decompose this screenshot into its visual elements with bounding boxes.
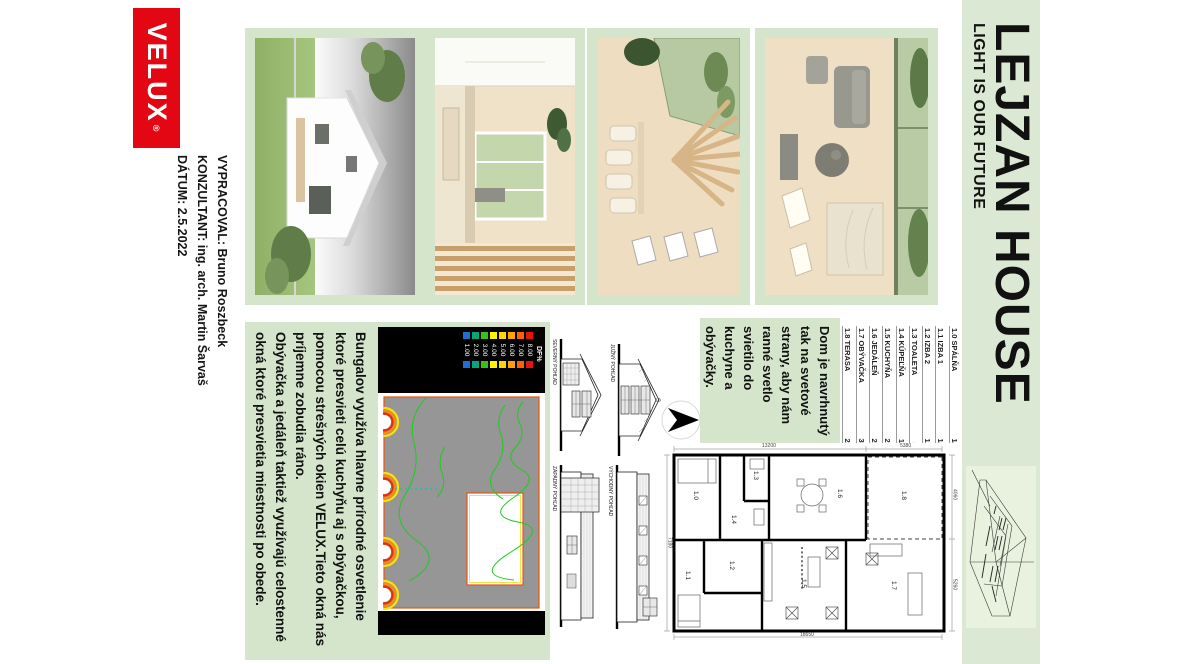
- dim-left-upper: 5380: [900, 443, 911, 449]
- room-label-jedalen: 1.6: [836, 489, 843, 498]
- room-legend: 1.0 SPÁLŇA14m²1.1 IZBA 114m²1.2 IZBA 212…: [842, 326, 962, 458]
- elevation-south-label: JUŽNÝ POHĽAD: [610, 344, 617, 382]
- render-dining-image: [597, 38, 740, 295]
- room-legend-row: 1.4 KÚPEĽŇA11m²: [896, 326, 909, 458]
- df-legend-row: 2.00: [472, 332, 480, 384]
- df-legend-row: 8.00: [526, 332, 534, 384]
- dim-right: 18650: [800, 632, 814, 638]
- north-label: S: [654, 398, 660, 402]
- elevation-east-label: VÝCHODNÝ POHĽAD: [608, 466, 614, 517]
- room-legend-row: 1.2 IZBA 212m²: [922, 326, 935, 458]
- daylight-panel: DF% 8.007.006.005.004.003.002.001.00 Bun…: [245, 322, 550, 660]
- presentation-board: LEJZAN HOUSE LIGHT IS OUR FUTURE: [0, 0, 1180, 664]
- render-kitchen-image: [435, 38, 575, 295]
- room-label-toaleta: 1.3: [752, 471, 759, 480]
- floor-plan: 5380 13200 18650 4060 5260 7180: [663, 443, 958, 642]
- paragraph-daylight: Bungalov využíva hlavne prírodné osvetle…: [250, 332, 370, 654]
- room-label-izba1: 1.1: [684, 571, 691, 580]
- dim-top-right: 5260: [952, 579, 958, 590]
- poster-viewport: LEJZAN HOUSE LIGHT IS OUR FUTURE: [0, 0, 1180, 664]
- render-dining-panel: [587, 28, 750, 305]
- registered-mark: ®: [152, 125, 162, 134]
- render-living-image: [765, 38, 928, 295]
- wireframe-house-drawing: [966, 466, 1036, 628]
- room-label-izba2: 1.2: [728, 561, 735, 570]
- room-label-kuchyna: 1.5: [800, 579, 807, 588]
- df-legend-row: 5.00: [499, 332, 507, 384]
- room-legend-row: 1.7 OBÝVAČKA30m²: [856, 326, 869, 458]
- paragraph-orientation: Dom je navrhnutý tak na svetové strany, …: [700, 318, 840, 462]
- render-living-panel: [755, 28, 938, 305]
- room-legend-row: 1.1 IZBA 114m²: [935, 326, 948, 458]
- wireframe-axonometry: [966, 466, 1036, 628]
- north-arrow-icon: S: [654, 395, 702, 445]
- df-legend-row: 4.00: [490, 332, 498, 384]
- room-label-terasa: 1.8: [900, 491, 907, 500]
- elevation-west: ZÁPADNÝ POHĽAD: [552, 462, 607, 630]
- df-legend-rows: 8.007.006.005.004.003.002.001.00: [463, 332, 534, 384]
- dim-top-left: 4060: [952, 489, 958, 500]
- room-label-obyvacka: 1.7: [890, 581, 897, 590]
- elevation-north: SEVERNÝ POHĽAD: [552, 335, 607, 455]
- render-exterior-panel: [245, 28, 425, 305]
- room-legend-row: 1.3 TOALETA3m²: [909, 326, 922, 458]
- daylight-analysis-image: DF% 8.007.006.005.004.003.002.001.00: [378, 327, 545, 635]
- elevation-west-label: ZÁPADNÝ POHĽAD: [552, 466, 558, 512]
- room-label-kupelna: 1.4: [730, 515, 737, 524]
- render-kitchen-panel: [425, 28, 585, 305]
- room-legend-row: 1.5 KUCHYŇA27m²: [882, 326, 895, 458]
- room-legend-row: 1.6 JEDÁLEŇ26m²: [869, 326, 882, 458]
- df-legend-row: 1.00: [463, 332, 471, 384]
- elevation-east: VÝCHODNÝ POHĽAD: [608, 462, 663, 632]
- velux-logo-text: VELUX: [141, 23, 172, 123]
- render-exterior-image: [255, 38, 415, 295]
- room-legend-row: 1.0 SPÁLŇA14m²: [949, 326, 962, 458]
- elevation-north-label: SEVERNÝ POHĽAD: [552, 339, 558, 385]
- dim-left-lower: 13200: [762, 443, 776, 449]
- dim-bottom: 7180: [667, 537, 673, 548]
- room-legend-row: 1.8 TERASA23m²: [842, 326, 855, 458]
- df-legend-title: DF%: [535, 346, 542, 384]
- poster-subtitle: LIGHT IS OUR FUTURE: [969, 23, 987, 209]
- df-legend-row: 3.00: [481, 332, 489, 384]
- df-legend: DF% 8.007.006.005.004.003.002.001.00: [462, 332, 542, 384]
- df-legend-row: 6.00: [508, 332, 516, 384]
- credits-text: VYPRACOVAL: Bruno Roszbeck KONZULTANT: i…: [170, 155, 232, 405]
- poster-title: LEJZAN HOUSE: [984, 22, 1039, 405]
- title-strip: LEJZAN HOUSE LIGHT IS OUR FUTURE: [962, 0, 1040, 664]
- df-legend-row: 7.00: [517, 332, 525, 384]
- velux-logo: VELUX®: [133, 8, 180, 148]
- room-label-spalna: 1.0: [692, 491, 699, 500]
